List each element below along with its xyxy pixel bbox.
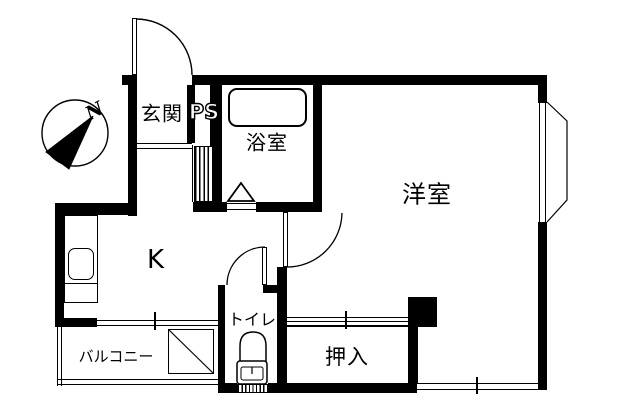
toilet-bowl-icon	[240, 332, 266, 362]
floor-plan: N 玄関 PS 浴室 洋室 K トイレ 押入 バルコニー	[0, 0, 640, 412]
bath-folding-door-icon	[228, 183, 254, 201]
entrance-door-arc	[136, 19, 192, 75]
room-label-balcony: バルコニー	[79, 346, 154, 367]
toilet-door-arc	[227, 247, 265, 285]
room-label-western: 洋室	[402, 175, 452, 210]
room-label-ps: PS	[189, 100, 220, 124]
west-room-door-arc	[287, 213, 342, 267]
room-label-genkan: 玄関	[141, 98, 183, 127]
room-label-toilet: トイレ	[228, 306, 276, 330]
balcony-hatch-diagonal	[169, 330, 213, 373]
room-label-closet: 押入	[325, 341, 369, 371]
room-label-kitchen: K	[147, 245, 165, 275]
room-label-bath: 浴室	[246, 127, 288, 156]
bay-window-outline	[547, 102, 567, 222]
